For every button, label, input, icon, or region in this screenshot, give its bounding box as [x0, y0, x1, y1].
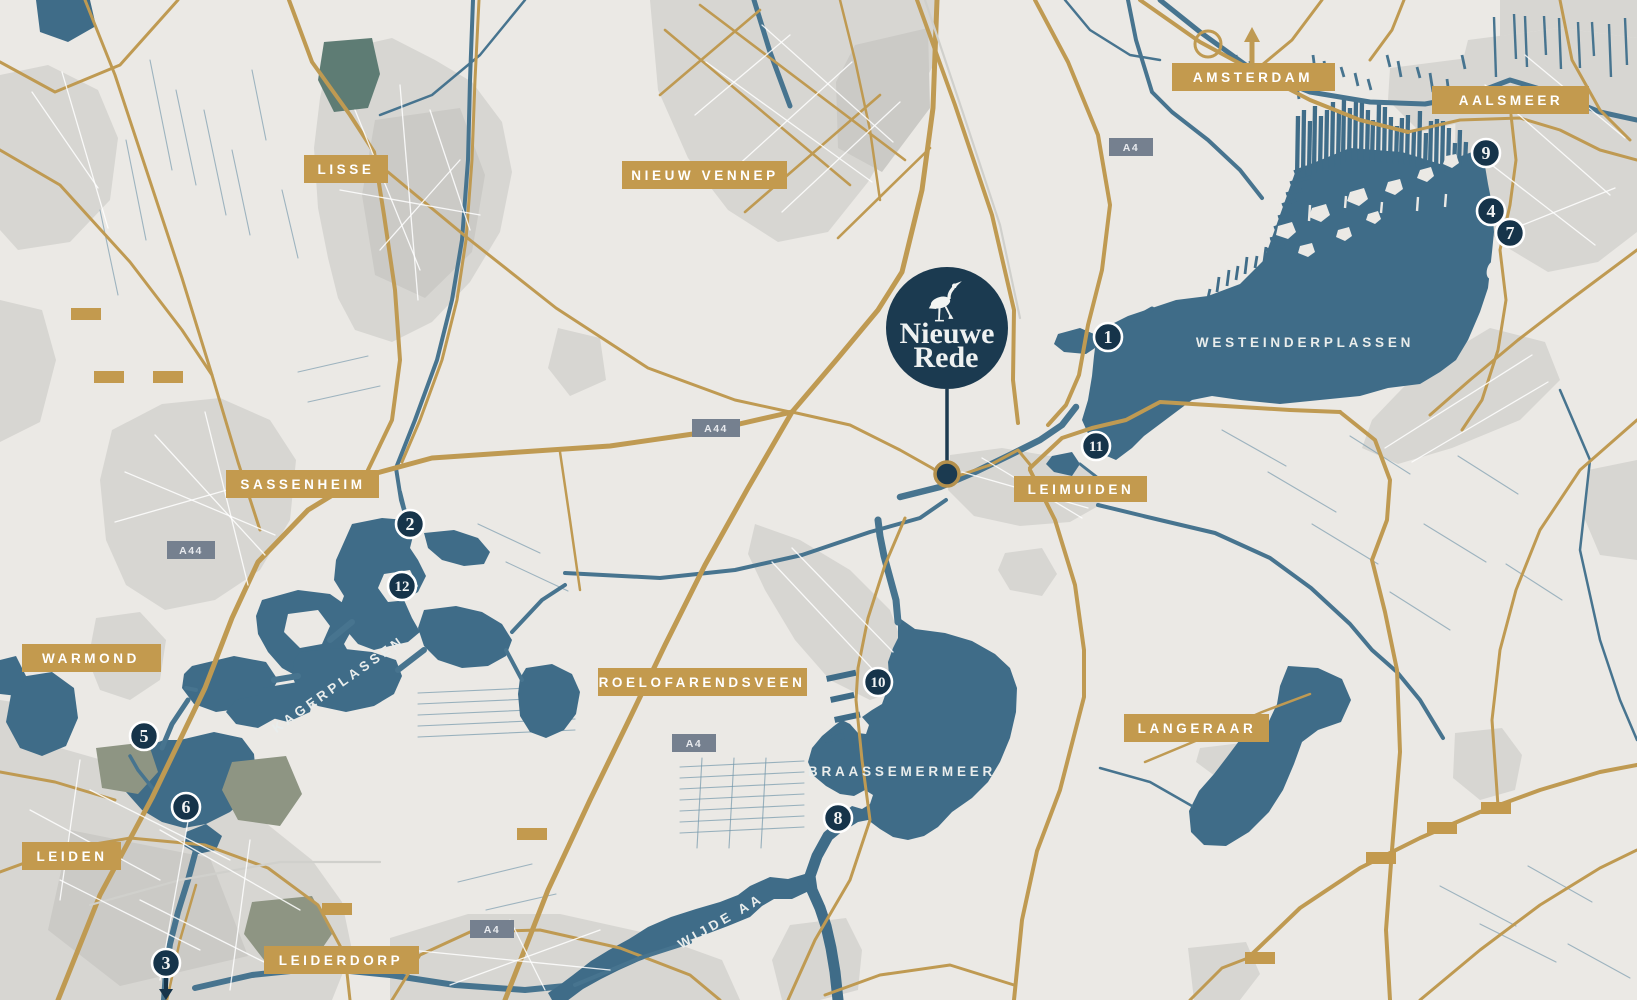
- svg-text:2: 2: [406, 514, 415, 534]
- svg-text:12: 12: [395, 579, 410, 595]
- svg-text:7: 7: [1506, 223, 1515, 243]
- svg-text:11: 11: [1089, 439, 1103, 455]
- svg-text:1: 1: [1104, 327, 1113, 347]
- svg-text:8: 8: [834, 808, 843, 828]
- svg-text:NIEUW VENNEP: NIEUW VENNEP: [631, 168, 778, 183]
- svg-text:A44: A44: [179, 545, 203, 557]
- svg-text:5: 5: [140, 726, 149, 746]
- svg-text:LANGERAAR: LANGERAAR: [1138, 721, 1257, 736]
- svg-text:WARMOND: WARMOND: [42, 651, 140, 666]
- svg-text:A44: A44: [704, 423, 728, 435]
- svg-text:LEIDERDORP: LEIDERDORP: [279, 953, 404, 968]
- svg-text:Rede: Rede: [914, 341, 979, 374]
- svg-text:4: 4: [1487, 201, 1496, 221]
- svg-text:3: 3: [162, 953, 171, 973]
- svg-text:6: 6: [182, 797, 191, 817]
- svg-text:LEIMUIDEN: LEIMUIDEN: [1028, 482, 1135, 497]
- svg-text:10: 10: [871, 675, 886, 691]
- svg-text:LEIDEN: LEIDEN: [36, 849, 107, 864]
- svg-text:BRAASSEMERMEER: BRAASSEMERMEER: [808, 764, 996, 779]
- svg-text:LISSE: LISSE: [317, 162, 374, 177]
- svg-text:AALSMEER: AALSMEER: [1459, 93, 1564, 108]
- svg-text:SASSENHEIM: SASSENHEIM: [240, 477, 365, 492]
- svg-text:AMSTERDAM: AMSTERDAM: [1193, 70, 1313, 85]
- svg-text:9: 9: [1482, 143, 1491, 163]
- svg-text:WESTEINDERPLASSEN: WESTEINDERPLASSEN: [1196, 335, 1414, 350]
- svg-text:ROELOFARENDSVEEN: ROELOFARENDSVEEN: [599, 675, 806, 690]
- svg-text:A4: A4: [484, 924, 500, 936]
- svg-text:A4: A4: [686, 738, 702, 750]
- svg-text:A4: A4: [1123, 142, 1139, 154]
